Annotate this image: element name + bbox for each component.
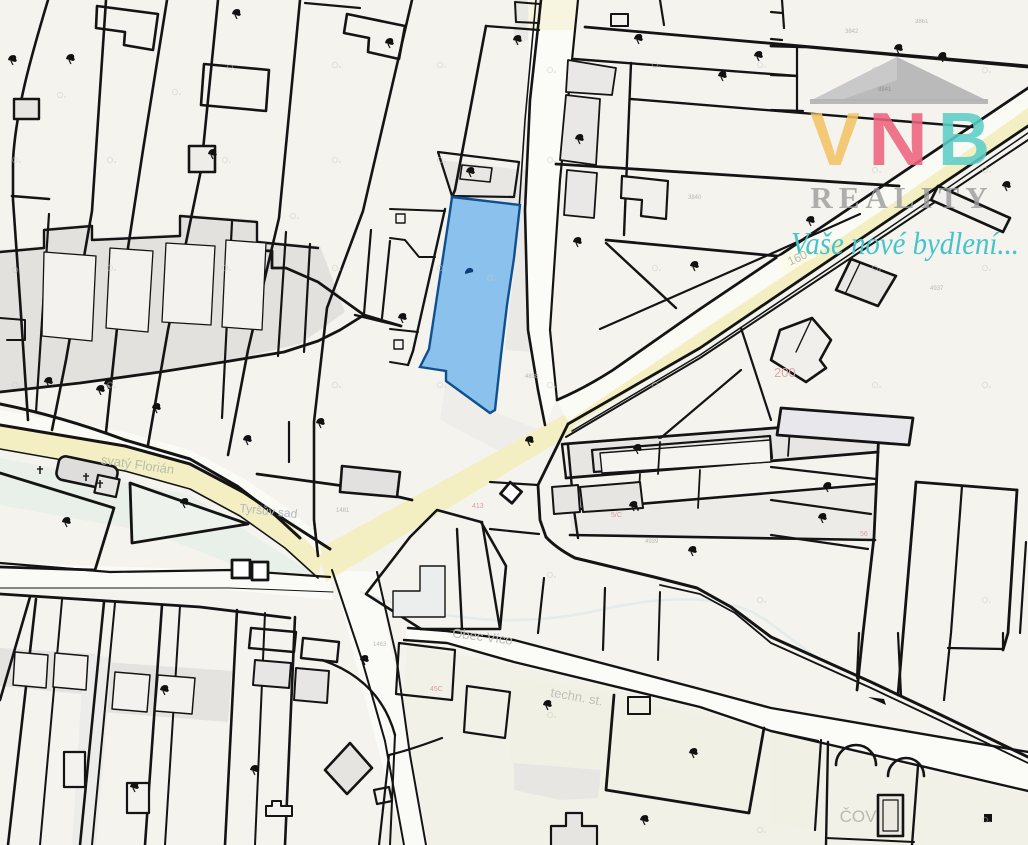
svg-text:3861: 3861 bbox=[915, 19, 929, 25]
svg-text:REALITY: REALITY bbox=[810, 180, 993, 215]
svg-text:Vaše nové bydlení...: Vaše nové bydlení... bbox=[791, 225, 1019, 261]
svg-text:413: 413 bbox=[472, 503, 484, 510]
svg-text:5/C: 5/C bbox=[611, 512, 622, 519]
svg-text:N: N bbox=[868, 97, 928, 181]
svg-text:4937: 4937 bbox=[930, 286, 944, 292]
svg-text:1463: 1463 bbox=[373, 642, 387, 648]
svg-text:4838: 4838 bbox=[525, 374, 539, 380]
svg-text:ČOV: ČOV bbox=[840, 807, 878, 826]
svg-text:200: 200 bbox=[774, 365, 796, 380]
svg-text:3840: 3840 bbox=[688, 195, 702, 201]
svg-text:8841: 8841 bbox=[878, 87, 892, 93]
svg-text:4939: 4939 bbox=[645, 539, 659, 545]
svg-text:3842: 3842 bbox=[845, 29, 859, 35]
svg-text:B: B bbox=[938, 97, 990, 181]
svg-text:1481: 1481 bbox=[336, 508, 350, 514]
svg-text:56: 56 bbox=[860, 531, 868, 538]
svg-text:45C: 45C bbox=[430, 686, 443, 693]
svg-text:V: V bbox=[810, 97, 860, 181]
